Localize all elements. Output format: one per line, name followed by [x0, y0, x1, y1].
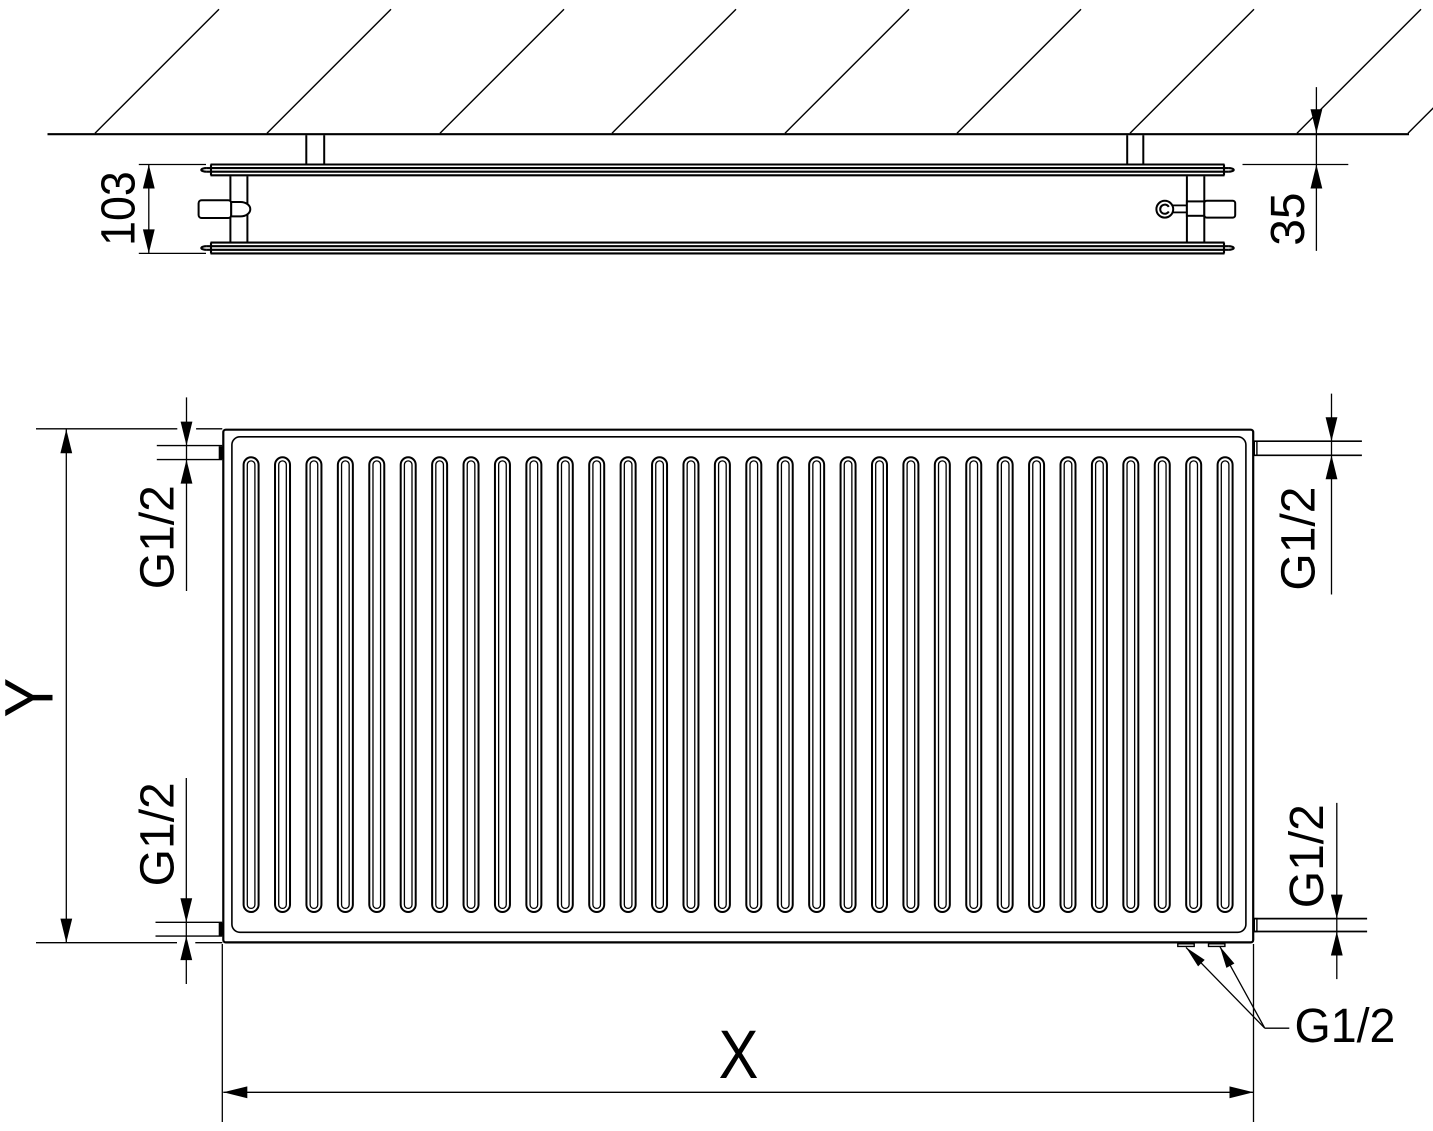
- svg-text:G1/2: G1/2: [132, 782, 185, 886]
- svg-text:Y: Y: [0, 678, 67, 718]
- svg-text:G1/2: G1/2: [1273, 487, 1326, 591]
- svg-text:103: 103: [91, 171, 145, 245]
- svg-text:X: X: [719, 1016, 759, 1093]
- svg-text:G1/2: G1/2: [1295, 999, 1396, 1053]
- svg-text:35: 35: [1262, 192, 1315, 245]
- svg-text:G1/2: G1/2: [132, 485, 185, 589]
- svg-text:G1/2: G1/2: [1281, 804, 1334, 908]
